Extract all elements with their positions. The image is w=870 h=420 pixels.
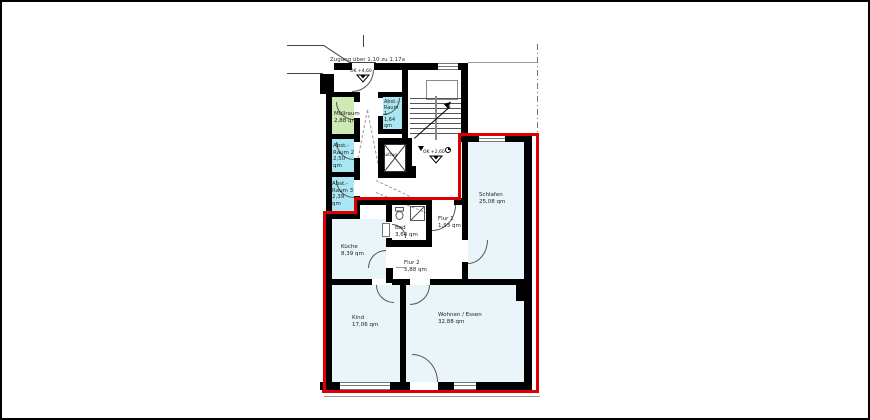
room-name: Schlafen	[479, 192, 515, 199]
wall	[462, 142, 468, 240]
wall	[326, 279, 372, 285]
apartment-boundary-line	[322, 390, 539, 393]
wall	[461, 135, 479, 142]
room-label-kueche: Küche 8,39 qm	[341, 244, 371, 257]
room-area: 1,64 qm	[384, 117, 403, 129]
entry-level-marker: OK +4,60	[350, 69, 372, 83]
room-area: 8,39 qm	[341, 251, 371, 258]
level-marker-icon	[429, 155, 443, 164]
room-label-wohnen-essen: Wohnen / Essen 32,88 qm	[438, 312, 490, 325]
room-area: 17,06 qm	[352, 322, 384, 329]
room-name: Abst.- Raum 1	[384, 99, 403, 117]
room-name: Abst.- Raum 3	[332, 181, 354, 194]
building-outline-line	[287, 73, 323, 74]
wall	[516, 285, 524, 301]
room-area: 25,08 qm	[479, 199, 515, 206]
room-area: 1,93 qm	[438, 223, 462, 230]
elevator-label: Aufzug	[383, 152, 397, 157]
shower-icon	[410, 206, 425, 221]
room-area: 2,39 qm	[332, 194, 354, 207]
wall	[462, 262, 468, 279]
window	[340, 382, 390, 390]
window	[479, 135, 505, 142]
room-label-kind: Kind 17,06 qm	[352, 315, 384, 328]
stair-level-marker: OK +2,60	[423, 150, 445, 164]
wall	[374, 63, 402, 70]
room-label-flur-2: Flur 2 5,88 qm	[404, 260, 428, 273]
drain-symbol-icon	[445, 147, 451, 153]
stair-level-label: OK +2,60	[423, 150, 445, 155]
apartment-boundary-line	[536, 133, 539, 393]
wall	[354, 92, 360, 102]
access-note: Zugang über 1.10 zu 1.17a	[330, 57, 405, 63]
room-area: 3,64 qm	[395, 232, 419, 239]
wall	[320, 74, 334, 94]
wall	[326, 172, 354, 177]
room-label-abstellraum-1: Abst.- Raum 1 1,64 qm	[384, 99, 403, 129]
room-area: 2,50 qm	[333, 156, 355, 169]
wall	[386, 205, 392, 222]
room-label-schlafen: Schlafen 25,08 qm	[479, 192, 515, 205]
room-label-flur-1: Flur 1 1,93 qm	[438, 216, 462, 229]
room-name: Müllraum	[334, 111, 358, 118]
wall	[400, 285, 406, 382]
entry-level-label: OK +4,60	[350, 69, 372, 74]
room-name: Wohnen / Essen	[438, 312, 490, 319]
wall	[476, 382, 532, 390]
wall	[505, 135, 532, 142]
room-label-muellraum: Müllraum 2,88 qm	[334, 111, 358, 124]
level-marker-icon	[356, 74, 370, 83]
elevator-x-icon	[384, 144, 406, 172]
room-label-abstellraum-3: Abst.- Raum 3 2,39 qm	[332, 181, 354, 207]
room-label-bad: Bad 3,64 qm	[395, 225, 419, 238]
wall	[402, 63, 438, 70]
label-leader-line	[396, 267, 405, 268]
room-name: Kind	[352, 315, 384, 322]
window	[454, 382, 476, 390]
room-area: 32,88 qm	[438, 319, 490, 326]
building-outline-line	[363, 35, 364, 47]
wall	[390, 382, 410, 390]
room-name: Abst.- Raum 2	[333, 143, 355, 156]
wall	[386, 240, 432, 247]
room-name: Küche	[341, 244, 371, 251]
apartment-boundary-line	[323, 211, 326, 393]
floor-plan-canvas: Aufzug Zugang über 1.10 zu 1.17a OK +4,6…	[0, 0, 870, 420]
room-area: 2,88 qm	[334, 118, 358, 125]
window	[438, 63, 458, 70]
apartment-boundary-line	[458, 133, 461, 200]
wall	[461, 63, 468, 135]
door-leaf	[382, 223, 390, 237]
room-name: Flur 1	[438, 216, 462, 223]
apartment-boundary-line	[354, 197, 461, 200]
apartment-boundary-line	[458, 133, 539, 136]
room-name: Bad	[395, 225, 419, 232]
room-area: 5,88 qm	[404, 267, 428, 274]
wall	[326, 134, 354, 139]
apartment-boundary-line	[323, 211, 357, 214]
wall	[378, 129, 408, 134]
building-outline-line	[468, 62, 537, 63]
terrace-edge-line	[324, 396, 540, 397]
stair-landing	[426, 80, 458, 100]
room-name: Flur 2	[404, 260, 428, 267]
wall	[524, 142, 532, 382]
building-outline-line	[287, 45, 324, 46]
room-label-abstellraum-2: Abst.- Raum 2 2,50 qm	[333, 143, 355, 169]
elevator-cabin	[384, 144, 406, 172]
wall	[438, 382, 454, 390]
toilet-icon	[395, 207, 404, 220]
